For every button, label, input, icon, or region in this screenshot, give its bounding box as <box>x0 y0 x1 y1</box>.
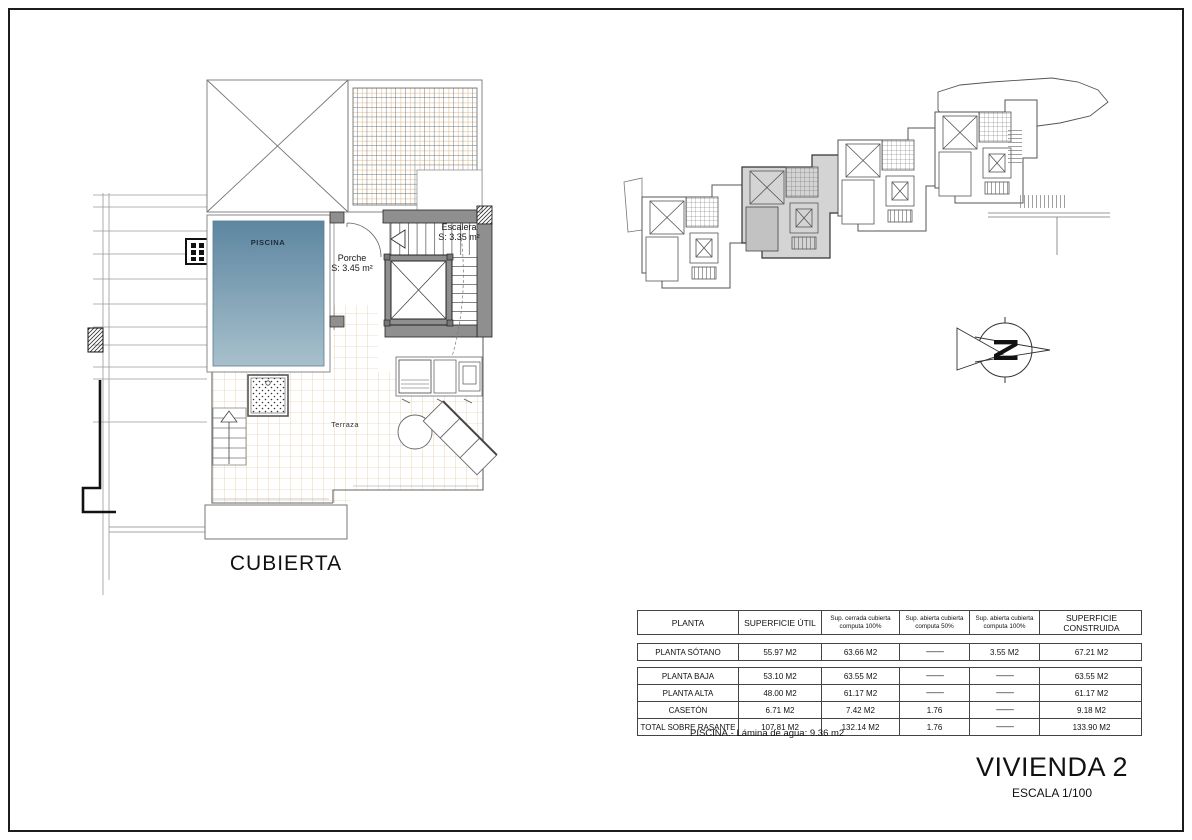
pergola-roof <box>348 80 482 212</box>
table-row: PLANTA ALTA 48.00 M2 61.17 M2 ----------… <box>638 684 1141 701</box>
cell: 55.97 M2 <box>738 644 821 660</box>
cell: 1.76 <box>899 719 969 735</box>
cell: 63.55 M2 <box>821 668 899 684</box>
site-ramp <box>1020 195 1065 208</box>
lower-roof-slab <box>109 505 347 539</box>
cell: CASETÓN <box>638 702 738 718</box>
cell: ------------- <box>969 668 1039 684</box>
cell: 7.42 M2 <box>821 702 899 718</box>
cell: ------------- <box>899 644 969 660</box>
cell: ------------- <box>969 719 1039 735</box>
col-header: Sup. cerrada cubierta computa 100% <box>821 611 899 634</box>
cell: ------------- <box>899 685 969 701</box>
area-table: PLANTA SUPERFICIE ÚTIL Sup. cerrada cubi… <box>637 610 1142 736</box>
col-header: Sup. abierta cubierta computa 100% <box>969 611 1039 634</box>
cell: ------------- <box>969 685 1039 701</box>
col-header: PLANTA <box>638 611 738 634</box>
table-row: PLANTA SÓTANO 55.97 M2 63.66 M2 --------… <box>637 643 1142 661</box>
porch-area: S: 3.45 m² <box>312 263 392 273</box>
cell: 9.18 M2 <box>1039 702 1143 718</box>
site-unit-1 <box>642 185 744 288</box>
terrace-label: Terraza <box>305 420 385 429</box>
cell: 1.76 <box>899 702 969 718</box>
door-swing <box>347 223 381 257</box>
col-header: SUPERFICIE CONSTRUIDA <box>1039 611 1143 634</box>
cell: PLANTA ALTA <box>638 685 738 701</box>
elevator-shaft <box>384 254 453 326</box>
cell: PLANTA BAJA <box>638 668 738 684</box>
floor-plan-drawing <box>60 50 520 595</box>
window-icon <box>186 239 208 264</box>
plot-step-outline <box>83 380 116 512</box>
drawing-sheet: PISCINA Porche S: 3.45 m² Escalera S: 3.… <box>0 0 1192 840</box>
cell: 63.66 M2 <box>821 644 899 660</box>
area-table-body: PLANTA BAJA 53.10 M2 63.55 M2 ----------… <box>637 667 1142 736</box>
cell: PLANTA SÓTANO <box>638 644 738 660</box>
cell: 53.10 M2 <box>738 668 821 684</box>
shower-tray <box>248 375 288 416</box>
cell: 63.55 M2 <box>1039 668 1143 684</box>
sheet-scale: ESCALA 1/100 <box>952 786 1152 800</box>
cell: 61.17 M2 <box>1039 685 1143 701</box>
col-header: SUPERFICIE ÚTIL <box>738 611 821 634</box>
site-unit-2-highlighted <box>742 155 844 258</box>
stairs-name: Escalera <box>419 222 499 232</box>
cell: 61.17 M2 <box>821 685 899 701</box>
floor-plan-title: CUBIERTA <box>186 552 386 576</box>
col-header: Sup. abierta cubierta computa 50% <box>899 611 969 634</box>
porch-name: Porche <box>312 253 392 263</box>
north-arrow-icon: N <box>945 310 1060 395</box>
wall-hatch-block <box>88 328 103 352</box>
cell: ------------- <box>899 668 969 684</box>
access-stairs <box>213 408 246 465</box>
cell: 48.00 M2 <box>738 685 821 701</box>
cell: 6.71 M2 <box>738 702 821 718</box>
site-unit-3 <box>838 128 940 231</box>
title-block: VIVIENDA 2 ESCALA 1/100 <box>952 752 1152 800</box>
stairs-area: S: 3.35 m² <box>419 232 499 242</box>
cell: 67.21 M2 <box>1039 644 1143 660</box>
site-ramp <box>1008 128 1022 166</box>
stairs-label: Escalera S: 3.35 m² <box>419 222 499 243</box>
table-row: CASETÓN 6.71 M2 7.42 M2 1.76 -----------… <box>638 701 1141 718</box>
sheet-title: VIVIENDA 2 <box>952 752 1152 783</box>
skylight-void <box>207 80 348 212</box>
cell: 133.90 M2 <box>1039 719 1143 735</box>
outdoor-kitchen <box>396 357 482 403</box>
area-table-header: PLANTA SUPERFICIE ÚTIL Sup. cerrada cubi… <box>637 610 1142 635</box>
table-row: PLANTA BAJA 53.10 M2 63.55 M2 ----------… <box>638 668 1141 684</box>
svg-text:N: N <box>986 338 1024 363</box>
site-plan-drawing <box>620 70 1120 300</box>
porch-label: Porche S: 3.45 m² <box>312 253 392 274</box>
pool-footnote: PISCINA.- Lámina de agua: 9.36 m2 <box>690 728 844 739</box>
pool-label: PISCINA <box>228 238 308 247</box>
cell: ------------- <box>969 702 1039 718</box>
cell: 3.55 M2 <box>969 644 1039 660</box>
